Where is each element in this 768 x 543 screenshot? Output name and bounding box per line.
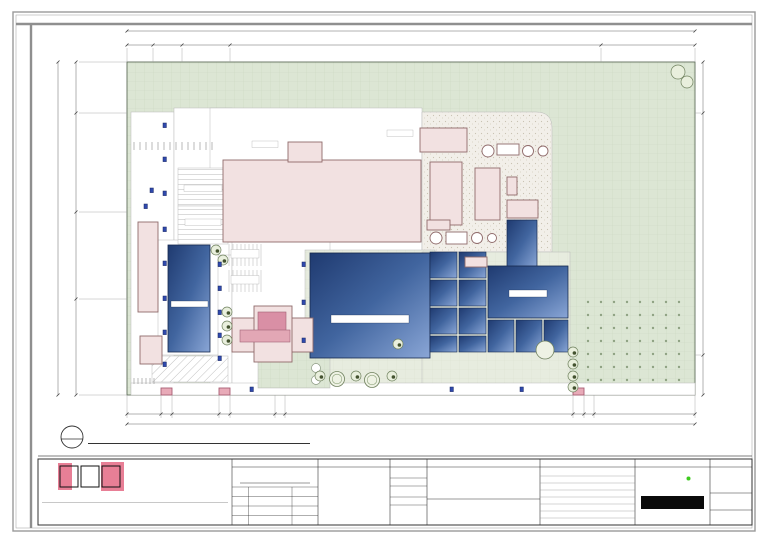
site-plan — [57, 30, 705, 426]
pumping-station-building — [465, 257, 487, 267]
condenser-unit — [507, 177, 517, 195]
process-aux-building — [427, 220, 450, 230]
turbine-building — [475, 168, 500, 220]
sanitation-strip — [138, 222, 158, 312]
medical-waste-building — [288, 142, 322, 162]
gate-1 — [161, 388, 172, 395]
rain-water-pond-main — [310, 253, 430, 358]
drawing-sheet — [0, 0, 768, 543]
title-block — [38, 456, 752, 525]
ra-notice-panel — [320, 468, 388, 524]
maxi-logo-leaf — [687, 477, 691, 481]
rain-water-pond-west — [168, 245, 210, 352]
security-building — [140, 336, 162, 364]
cooling-tower-basin — [507, 220, 537, 268]
plant-processing-building — [223, 160, 421, 242]
energy-bar — [641, 496, 704, 509]
sheet-title-area — [61, 426, 310, 448]
site-development-plan-sheet — [0, 0, 768, 543]
ash-bunker-building — [420, 128, 467, 152]
boiler-building — [430, 162, 462, 225]
gate-2 — [219, 388, 230, 395]
cooling-tower-building — [507, 200, 538, 218]
